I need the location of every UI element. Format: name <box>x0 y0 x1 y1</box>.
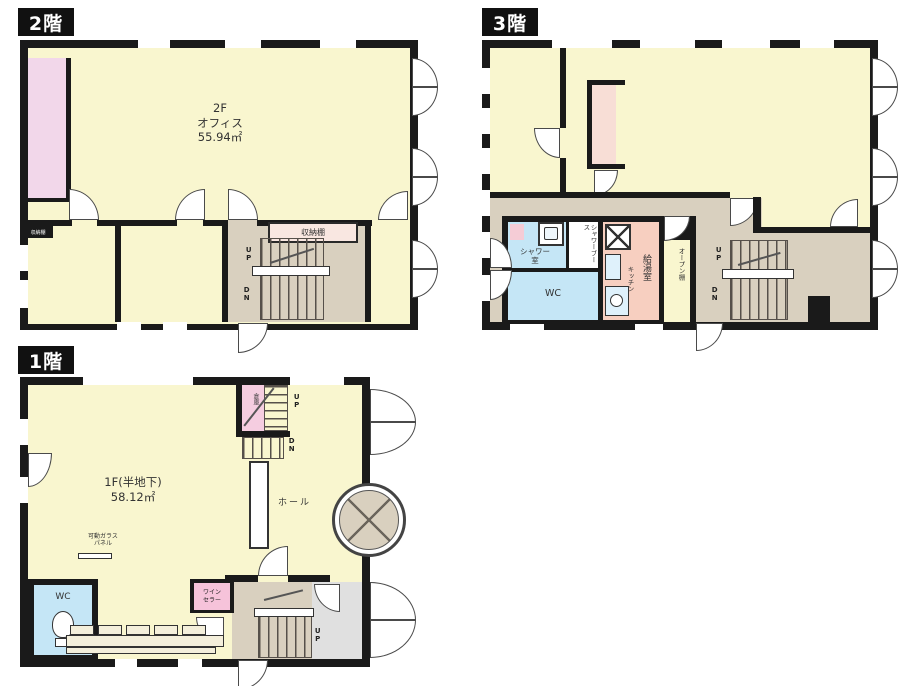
vent-x-icon <box>605 224 631 250</box>
floor2-storage-shelf-label: 収納棚 <box>301 227 325 238</box>
wall <box>560 48 566 128</box>
washing-machine-drum-icon <box>544 227 558 240</box>
window-gap <box>552 40 612 48</box>
wall <box>808 296 830 322</box>
double-door-arc <box>370 620 416 658</box>
wall <box>490 192 566 198</box>
fan-icon <box>610 294 623 307</box>
casement-window-arc <box>412 87 438 116</box>
floor3-stair-landing <box>722 269 794 279</box>
casement-window-arc <box>872 58 898 87</box>
wall <box>66 58 71 200</box>
floor1-room-line2: 58.12㎡ <box>111 490 155 505</box>
floor1-tag: 1階 <box>18 346 74 374</box>
floor1-down-stairs <box>242 437 284 459</box>
window-gap <box>482 68 490 94</box>
floor2-room-line2: オフィス <box>197 116 243 131</box>
window-gap <box>138 40 170 48</box>
window-gap <box>482 232 490 258</box>
casement-window-arc <box>412 177 438 206</box>
double-door-arc <box>370 389 416 422</box>
floor3-section: 3階 <box>480 6 900 346</box>
bench-base-lower <box>66 647 216 654</box>
floor3-tag: 3階 <box>482 8 538 36</box>
window-gap <box>640 40 695 48</box>
wall <box>97 220 177 226</box>
floor3-shower-line1: シャワー <box>520 247 550 256</box>
casement-window-arc <box>872 87 898 116</box>
floor3-wc-label: WC <box>508 286 598 300</box>
floor2-stair-landing <box>252 266 330 276</box>
floor3-open-shelf-label: オープン棚 <box>670 248 684 316</box>
window-gap <box>290 377 344 385</box>
window-gap <box>482 148 490 174</box>
floor1-room-line1: 1F(半地下) <box>104 475 161 490</box>
casement-window-arc <box>872 177 898 206</box>
floor1-upper-stairs <box>264 385 288 431</box>
floor3-plan: シャワー 室 シャワーブース WC 給湯室 キッチン オープン棚 <box>482 40 878 330</box>
floor3-shower-sill <box>510 224 524 240</box>
wall <box>566 192 730 198</box>
floor2-stairs <box>260 238 324 320</box>
round-table-top <box>339 490 399 550</box>
floor2-room-line1: 2F <box>213 101 227 116</box>
casement-window-arc <box>412 269 438 298</box>
floor1-up-entry-label: UP <box>313 627 321 643</box>
floor2-small-storage-tag: 収納棚 <box>23 226 53 238</box>
window-gap <box>20 245 28 271</box>
wall <box>753 197 761 233</box>
wall <box>203 220 222 226</box>
floor1-section: 1階 1F(半地下) 58.12㎡ 倉庫 UP DN <box>18 344 448 686</box>
floor2-tag-label: 2階 <box>29 9 63 36</box>
wall <box>222 220 228 322</box>
wall <box>28 198 71 202</box>
bench-seat <box>154 625 178 635</box>
floorplan-canvas: 2階 2F オフィス 55.94㎡ <box>0 0 900 686</box>
floor3-shower-booth-label: シャワーブース <box>572 224 596 268</box>
floor1-wc-label: WC <box>34 591 92 603</box>
floor1-glass-line2: パネル <box>94 540 112 547</box>
floor1-wine-line1: ワイン <box>203 589 221 596</box>
wall <box>288 575 330 582</box>
bench-seat <box>182 625 206 635</box>
window-gap <box>83 377 193 385</box>
floor1-entry-stairs <box>258 612 312 658</box>
floor2-room-line3: 55.94㎡ <box>198 130 242 145</box>
bench-seat <box>126 625 150 635</box>
window-gap <box>482 275 490 301</box>
glass-panel-icon <box>78 553 112 559</box>
window-gap <box>117 322 141 330</box>
floor3-kitchen-sub-label: キッチン <box>623 266 633 308</box>
floor1-dn-label: DN <box>287 437 295 453</box>
floor1-wc-text: WC <box>55 592 70 602</box>
floor1-glass-panel-label: 可動ガラス パネル <box>70 531 136 549</box>
floor1-tag-label: 1階 <box>29 347 63 374</box>
floor2-tag: 2階 <box>18 8 74 36</box>
floor2-dn-label: DN <box>242 286 250 302</box>
window-gap <box>482 108 490 134</box>
wall <box>761 227 870 233</box>
floor2-room-label: 2F オフィス 55.94㎡ <box>160 98 280 148</box>
double-door-arc <box>370 422 416 455</box>
floor1-hall-label: ホール <box>278 495 311 508</box>
window-gap <box>20 419 28 445</box>
casement-window-arc <box>872 269 898 298</box>
floor2-small-storage-label: 収納棚 <box>30 229 45 236</box>
casement-window-arc <box>412 148 438 177</box>
window-gap <box>482 190 490 216</box>
bench-seat <box>98 625 122 635</box>
floor1-wine-line2: セラー <box>203 597 221 604</box>
window-gap <box>115 659 137 667</box>
floor3-shower-room-label: シャワー 室 <box>504 244 566 268</box>
floor2-section: 2階 2F オフィス 55.94㎡ <box>18 6 448 346</box>
floor3-closet <box>592 85 616 164</box>
casement-window-arc <box>872 148 898 177</box>
casement-window-arc <box>872 240 898 269</box>
window-gap <box>320 40 356 48</box>
floor1-wine-cellar: ワイン セラー <box>194 583 230 610</box>
wall <box>587 164 625 169</box>
window-gap <box>178 659 202 667</box>
door-arc <box>696 323 723 351</box>
wall <box>365 220 371 322</box>
bench-base <box>66 635 224 647</box>
casement-window-arc <box>412 58 438 87</box>
floor3-wc-text: WC <box>545 288 561 299</box>
window-gap <box>20 280 28 308</box>
floor1-up-top-label: UP <box>292 393 300 409</box>
double-door-arc <box>370 582 416 620</box>
floor1-counter <box>249 461 269 549</box>
floor1-glass-line1: 可動ガラス <box>88 533 118 540</box>
floor3-up-label: UP <box>714 246 722 262</box>
floor3-tag-label: 3階 <box>493 9 527 36</box>
window-gap <box>163 322 187 330</box>
door-arc <box>238 660 268 686</box>
floor2-plan: 2F オフィス 55.94㎡ 収納棚 <box>20 40 418 330</box>
floor1-plan: 1F(半地下) 58.12㎡ 倉庫 UP DN ホール <box>20 377 370 667</box>
sink-icon <box>605 254 621 280</box>
floor1-stair-landing <box>254 608 314 617</box>
wall <box>115 226 121 322</box>
floor3-kitchen-label: 給湯室 <box>636 254 650 310</box>
floor3-shower-line2: 室 <box>531 256 539 265</box>
floor1-room-label: 1F(半地下) 58.12㎡ <box>68 473 198 507</box>
window-gap <box>225 40 261 48</box>
casement-window-arc <box>412 240 438 269</box>
floor2-pink-room <box>28 58 66 198</box>
window-gap <box>800 40 834 48</box>
floor2-up-label: UP <box>244 246 252 262</box>
window-gap <box>722 40 770 48</box>
window-gap <box>20 477 28 503</box>
floor3-dn-label: DN <box>710 286 718 302</box>
bench-seat <box>70 625 94 635</box>
